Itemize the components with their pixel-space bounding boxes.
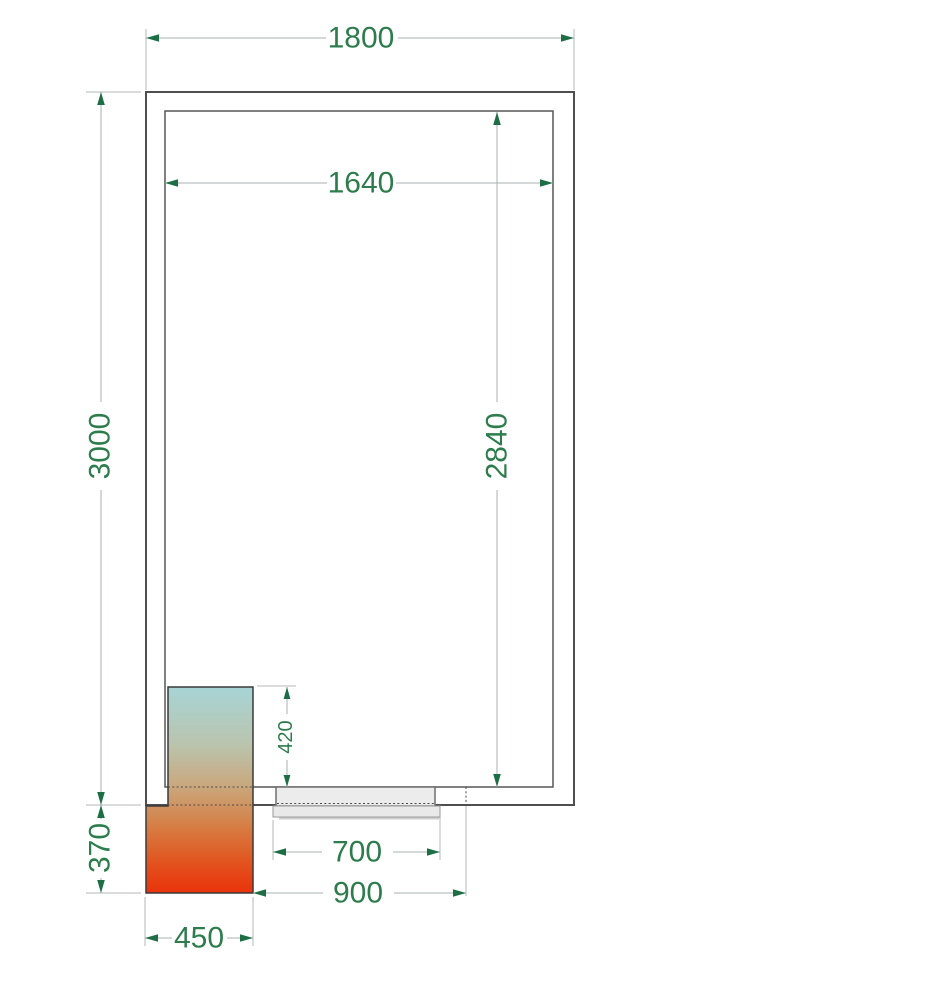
dim-arrow (97, 805, 105, 818)
dimension-inner-width: 1640 (165, 167, 553, 200)
dim-arrow (284, 775, 291, 787)
dim-outer-width-label: 1800 (328, 22, 395, 55)
dim-door-width-label: 700 (332, 836, 382, 869)
floor-plan-drawing: 1800 1640 3000 2840 420 (0, 0, 941, 1000)
dim-arrow (97, 92, 105, 105)
dim-arrow (145, 934, 158, 942)
dim-inner-depth-label: 2840 (481, 413, 514, 480)
door (273, 787, 441, 819)
dim-arrow (493, 774, 501, 787)
dimension-outer-width: 1800 (146, 22, 574, 91)
dimension-inner-depth: 2840 (481, 112, 514, 787)
dim-arrow (273, 848, 286, 856)
cooling-unit (146, 687, 253, 893)
dim-arrow (284, 687, 291, 699)
dim-unit-inside-depth-label: 420 (275, 720, 297, 753)
dim-arrow (97, 880, 105, 893)
dimension-outer-depth: 3000 (84, 92, 142, 805)
dim-arrow (427, 848, 440, 856)
dimension-door-offset: 900 (253, 877, 466, 910)
dim-arrow (561, 34, 574, 42)
dim-inner-width-label: 1640 (328, 167, 395, 200)
dim-arrow (253, 889, 266, 897)
dim-arrow (97, 792, 105, 805)
dim-arrow (493, 112, 501, 125)
dim-outer-depth-label: 3000 (84, 413, 117, 480)
dim-arrow (165, 179, 178, 187)
dimension-unit-outside-depth: 370 (84, 805, 142, 893)
dim-arrow (240, 934, 253, 942)
dim-arrow (453, 889, 466, 897)
dim-arrow (146, 34, 159, 42)
dim-unit-width-label: 450 (174, 922, 224, 955)
dim-door-offset-label: 900 (333, 877, 383, 910)
dimension-door-width: 700 (273, 820, 440, 869)
door-sill (273, 806, 440, 817)
dimension-unit-inside-depth: 420 (257, 686, 297, 787)
dimension-unit-width: 450 (145, 897, 253, 955)
dim-unit-outside-depth-label: 370 (84, 823, 117, 873)
floor-plan-canvas: 1800 1640 3000 2840 420 (0, 0, 941, 1000)
dim-arrow (540, 179, 553, 187)
